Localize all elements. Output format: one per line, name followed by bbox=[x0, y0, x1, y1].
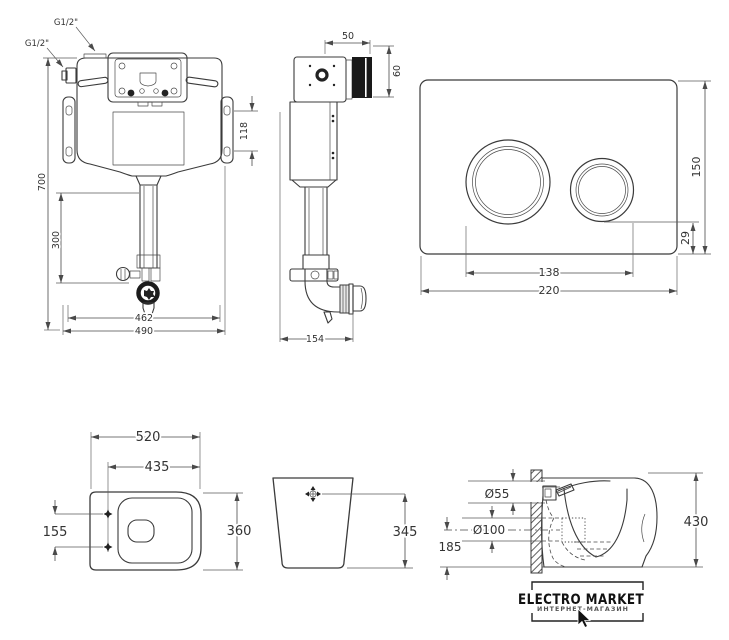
inlet-fitting-side bbox=[62, 68, 76, 83]
pan-back-view: 345 bbox=[273, 478, 417, 568]
sanitary-installation-drawing: G1/2" G1/2" 700 300 bbox=[0, 0, 729, 640]
fixing-hole-marker bbox=[104, 543, 113, 552]
wall-bracket bbox=[290, 269, 338, 281]
leader-inlet-top bbox=[76, 27, 95, 51]
dim-label-55: Ø55 bbox=[485, 487, 510, 501]
outlet-elbow bbox=[305, 281, 366, 323]
fixing-hole-marker bbox=[104, 510, 113, 519]
filling-valve bbox=[117, 268, 161, 282]
dim-label-138: 138 bbox=[539, 266, 560, 279]
dim-label-185: 185 bbox=[439, 540, 462, 554]
tank-top-stub bbox=[84, 54, 106, 58]
pan-top-view: 520 435 155 360 bbox=[43, 430, 252, 570]
push-rod-hole bbox=[317, 70, 327, 80]
plate-outline bbox=[420, 80, 677, 254]
dim-label-435: 435 bbox=[145, 460, 170, 475]
pan-profile bbox=[542, 478, 657, 567]
dim-label-700: 700 bbox=[37, 173, 48, 191]
flush-plate-view: 150 29 138 220 bbox=[420, 80, 711, 297]
leader-inlet-side bbox=[47, 48, 63, 67]
cistern-side-view: 50 60 154 bbox=[280, 31, 403, 345]
dim-label-360: 360 bbox=[227, 524, 252, 539]
pan-side-view: Ø55 Ø100 185 430 bbox=[439, 469, 709, 580]
hanger-rail-left bbox=[78, 77, 109, 87]
outlet-connector bbox=[139, 284, 158, 315]
dim-label-462: 462 bbox=[135, 313, 153, 324]
dim-label-100: Ø100 bbox=[473, 523, 505, 537]
dim-label-220: 220 bbox=[539, 284, 560, 297]
technical-drawing-page: G1/2" G1/2" 700 300 bbox=[0, 0, 729, 640]
dim-label-29: 29 bbox=[679, 231, 692, 245]
pan-body-top bbox=[90, 492, 201, 570]
protection-frame bbox=[352, 57, 372, 98]
access-box bbox=[108, 53, 187, 106]
inlet-side-label: G1/2" bbox=[25, 39, 49, 49]
dim-label-150: 150 bbox=[690, 157, 703, 178]
hanger-rail-right bbox=[186, 77, 219, 87]
bowl-rim bbox=[118, 498, 192, 563]
dim-label-490: 490 bbox=[135, 326, 153, 337]
logo-subtitle: ИНТЕРНЕТ-МАГАЗИН bbox=[537, 606, 629, 613]
dim-label-300: 300 bbox=[51, 231, 62, 249]
inner-service-panel bbox=[113, 112, 184, 165]
bowl-outlet-hole bbox=[128, 520, 154, 542]
hidden-trap-lines bbox=[542, 500, 611, 567]
logo-frame-top bbox=[532, 582, 643, 590]
dim-label-155: 155 bbox=[43, 525, 68, 540]
dim-label-430: 430 bbox=[684, 515, 709, 530]
dim-label-520: 520 bbox=[136, 430, 161, 445]
tank-outline bbox=[77, 58, 222, 176]
flush-pipe-side bbox=[303, 187, 329, 281]
fixing-dot bbox=[128, 90, 135, 97]
inlet-position-marker bbox=[305, 486, 321, 502]
dim-label-345: 345 bbox=[393, 525, 418, 540]
mounting-bracket-right bbox=[221, 97, 233, 163]
mounting-bracket-left bbox=[63, 97, 75, 163]
dim-label-50: 50 bbox=[342, 31, 354, 42]
flush-pipe bbox=[137, 185, 160, 268]
dim-label-118: 118 bbox=[239, 122, 250, 140]
inlet-top-label: G1/2" bbox=[54, 18, 78, 28]
tank-funnel bbox=[136, 176, 161, 185]
cistern-front-view: G1/2" G1/2" 700 300 bbox=[25, 18, 258, 337]
dim-label-60: 60 bbox=[392, 65, 403, 77]
fixing-dot bbox=[162, 90, 169, 97]
dim-label-154: 154 bbox=[306, 334, 324, 345]
